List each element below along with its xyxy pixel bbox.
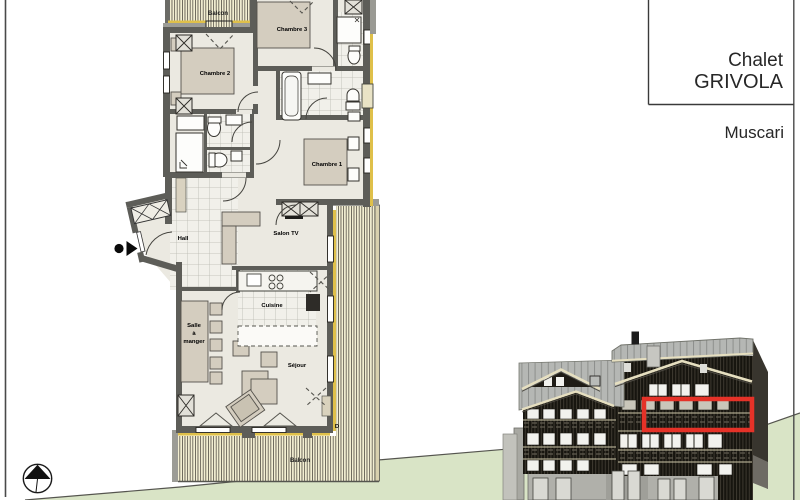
svg-text:Salon TV: Salon TV	[273, 231, 298, 237]
svg-text:Chalet: Chalet	[728, 50, 784, 71]
svg-text:Cuisine: Cuisine	[261, 303, 283, 309]
svg-text:Chambre 1: Chambre 1	[312, 162, 343, 168]
svg-text:Chambre 3: Chambre 3	[277, 27, 308, 33]
svg-text:Balcon: Balcon	[208, 11, 228, 17]
svg-text:Séjour: Séjour	[288, 363, 307, 369]
svg-text:Hall: Hall	[178, 236, 189, 242]
svg-text:D: D	[335, 424, 339, 430]
svg-text:Balcon: Balcon	[290, 458, 310, 464]
svg-text:Chambre 2: Chambre 2	[200, 71, 231, 77]
svg-text:Salle: Salle	[187, 323, 201, 329]
svg-text:manger: manger	[183, 339, 205, 345]
svg-text:GRIVOLA: GRIVOLA	[694, 71, 784, 93]
svg-text:Muscari: Muscari	[724, 123, 784, 142]
